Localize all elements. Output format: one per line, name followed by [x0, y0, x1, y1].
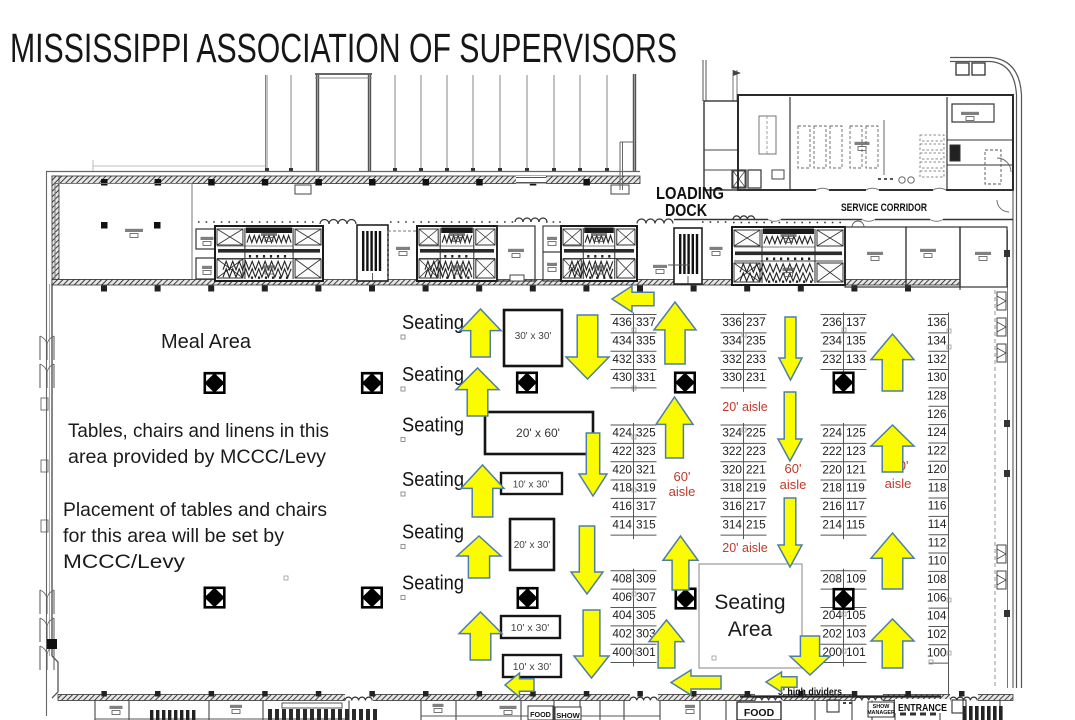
svg-text:100: 100 [927, 645, 947, 659]
svg-text:208: 208 [822, 571, 842, 585]
svg-text:130: 130 [927, 370, 947, 384]
svg-text:115: 115 [846, 517, 865, 531]
svg-text:132: 132 [927, 352, 947, 366]
svg-text:334: 334 [722, 333, 742, 347]
svg-text:234: 234 [822, 333, 842, 347]
svg-text:118: 118 [928, 480, 947, 494]
svg-text:335: 335 [636, 333, 656, 347]
svg-text:305: 305 [636, 608, 656, 622]
svg-text:aisle: aisle [669, 484, 696, 499]
svg-text:133: 133 [846, 352, 866, 366]
svg-text:225: 225 [746, 426, 766, 440]
svg-text:316: 316 [722, 499, 742, 513]
svg-text:434: 434 [612, 333, 632, 347]
svg-text:221: 221 [746, 462, 766, 476]
svg-text:430: 430 [612, 370, 632, 384]
svg-text:FOOD: FOOD [530, 710, 551, 719]
svg-text:137: 137 [846, 315, 866, 329]
svg-text:103: 103 [846, 626, 866, 640]
svg-text:202: 202 [822, 626, 842, 640]
svg-text:315: 315 [636, 517, 656, 531]
svg-text:121: 121 [846, 462, 866, 476]
svg-text:Seating: Seating [402, 468, 464, 491]
svg-text:416: 416 [612, 499, 632, 513]
svg-text:217: 217 [746, 499, 766, 513]
svg-text:122: 122 [927, 444, 947, 458]
svg-text:Seating: Seating [402, 311, 464, 334]
svg-text:10' x 30': 10' x 30' [513, 480, 550, 491]
svg-text:126: 126 [927, 407, 947, 421]
svg-text:224: 224 [822, 426, 842, 440]
svg-text:Seating: Seating [714, 591, 785, 614]
svg-text:aisle: aisle [780, 477, 807, 492]
svg-text:60': 60' [674, 469, 691, 484]
svg-text:422: 422 [612, 444, 632, 458]
svg-text:10' x 30': 10' x 30' [513, 661, 551, 673]
svg-text:223: 223 [746, 444, 766, 458]
svg-text:135: 135 [846, 333, 866, 347]
svg-text:ENTRANCE: ENTRANCE [898, 702, 947, 714]
svg-text:125: 125 [846, 426, 866, 440]
svg-text:317: 317 [636, 499, 656, 513]
svg-text:Meal Area: Meal Area [161, 331, 252, 353]
svg-text:219: 219 [746, 481, 766, 495]
svg-text:406: 406 [612, 590, 632, 604]
svg-text:218: 218 [822, 481, 842, 495]
svg-text:232: 232 [822, 352, 842, 366]
svg-text:123: 123 [846, 444, 866, 458]
svg-text:236: 236 [822, 315, 842, 329]
svg-text:119: 119 [846, 481, 865, 495]
svg-text:220: 220 [822, 462, 842, 476]
svg-text:101: 101 [846, 645, 866, 659]
svg-text:106: 106 [927, 590, 947, 604]
svg-text:404: 404 [612, 608, 632, 622]
svg-text:336: 336 [722, 315, 742, 329]
svg-text:aisle: aisle [885, 476, 912, 491]
svg-text:117: 117 [846, 499, 865, 513]
svg-text:136: 136 [927, 315, 947, 329]
svg-text:400: 400 [612, 645, 632, 659]
svg-text:414: 414 [612, 517, 632, 531]
svg-text:120: 120 [927, 462, 947, 476]
svg-text:432: 432 [612, 352, 632, 366]
svg-text:301: 301 [636, 645, 656, 659]
svg-text:109: 109 [846, 571, 866, 585]
svg-text:MISSISSIPPI ASSOCIATION OF SUP: MISSISSIPPI ASSOCIATION OF SUPERVISORS [10, 25, 677, 71]
svg-text:Area: Area [728, 618, 773, 641]
svg-text:105: 105 [846, 608, 866, 622]
svg-text:108: 108 [927, 572, 947, 586]
svg-text:330: 330 [722, 370, 742, 384]
svg-text:20' aisle: 20' aisle [722, 541, 768, 555]
svg-text:436: 436 [612, 315, 632, 329]
svg-text:DOCK: DOCK [665, 200, 707, 220]
svg-text:337: 337 [636, 315, 656, 329]
svg-text:114: 114 [928, 517, 947, 531]
svg-text:10' x 30': 10' x 30' [511, 622, 549, 634]
svg-text:112: 112 [928, 535, 947, 549]
svg-text:231: 231 [746, 370, 766, 384]
svg-text:SERVICE CORRIDOR: SERVICE CORRIDOR [841, 202, 927, 214]
svg-text:102: 102 [927, 627, 947, 641]
svg-text:222: 222 [822, 444, 842, 458]
svg-text:Placement of tables and chairs: Placement of tables and chairs [63, 499, 327, 521]
svg-text:420: 420 [612, 462, 632, 476]
svg-text:116: 116 [928, 499, 947, 513]
svg-text:area provided by MCCC/Levy: area provided by MCCC/Levy [68, 446, 326, 468]
svg-text:20' x 60': 20' x 60' [516, 426, 560, 440]
svg-text:319: 319 [636, 481, 656, 495]
svg-text:Seating: Seating [402, 521, 464, 544]
svg-text:SHOW: SHOW [556, 711, 580, 720]
svg-text:134: 134 [927, 333, 947, 347]
svg-text:Seating: Seating [402, 414, 464, 437]
svg-text:237: 237 [746, 315, 766, 329]
svg-text:20' aisle: 20' aisle [722, 400, 768, 414]
svg-text:314: 314 [722, 517, 742, 531]
svg-text:324: 324 [722, 426, 742, 440]
svg-text:402: 402 [612, 626, 632, 640]
svg-text:204: 204 [822, 608, 842, 622]
svg-text:408: 408 [612, 571, 632, 585]
svg-text:128: 128 [927, 389, 947, 403]
svg-text:60': 60' [785, 461, 802, 476]
svg-text:FOOD: FOOD [744, 707, 775, 719]
svg-text:for this area will be set by: for this area will be set by [63, 525, 284, 547]
svg-text:331: 331 [636, 370, 656, 384]
svg-text:20' x 30': 20' x 30' [514, 540, 551, 551]
svg-text:320: 320 [722, 462, 742, 476]
svg-text:233: 233 [746, 352, 766, 366]
svg-text:333: 333 [636, 352, 656, 366]
svg-text:MANAGER: MANAGER [867, 710, 895, 716]
svg-text:110: 110 [928, 554, 947, 568]
svg-text:Tables, chairs and linens in t: Tables, chairs and linens in this [68, 420, 329, 442]
svg-text:MCCC/Levy: MCCC/Levy [63, 551, 185, 573]
svg-text:235: 235 [746, 333, 766, 347]
svg-text:424: 424 [612, 426, 632, 440]
svg-text:322: 322 [722, 444, 742, 458]
svg-text:321: 321 [636, 462, 656, 476]
svg-text:307: 307 [636, 590, 656, 604]
svg-text:318: 318 [722, 481, 742, 495]
svg-text:215: 215 [746, 517, 766, 531]
svg-text:325: 325 [636, 426, 656, 440]
svg-text:216: 216 [822, 499, 842, 513]
svg-text:214: 214 [822, 517, 842, 531]
svg-text:Seating: Seating [402, 363, 464, 386]
svg-text:Seating: Seating [402, 572, 464, 595]
svg-text:332: 332 [722, 352, 742, 366]
svg-text:323: 323 [636, 444, 656, 458]
svg-text:309: 309 [636, 571, 656, 585]
svg-text:418: 418 [612, 481, 632, 495]
svg-text:30' x 30': 30' x 30' [515, 331, 552, 342]
svg-text:124: 124 [927, 425, 947, 439]
svg-text:104: 104 [927, 609, 947, 623]
